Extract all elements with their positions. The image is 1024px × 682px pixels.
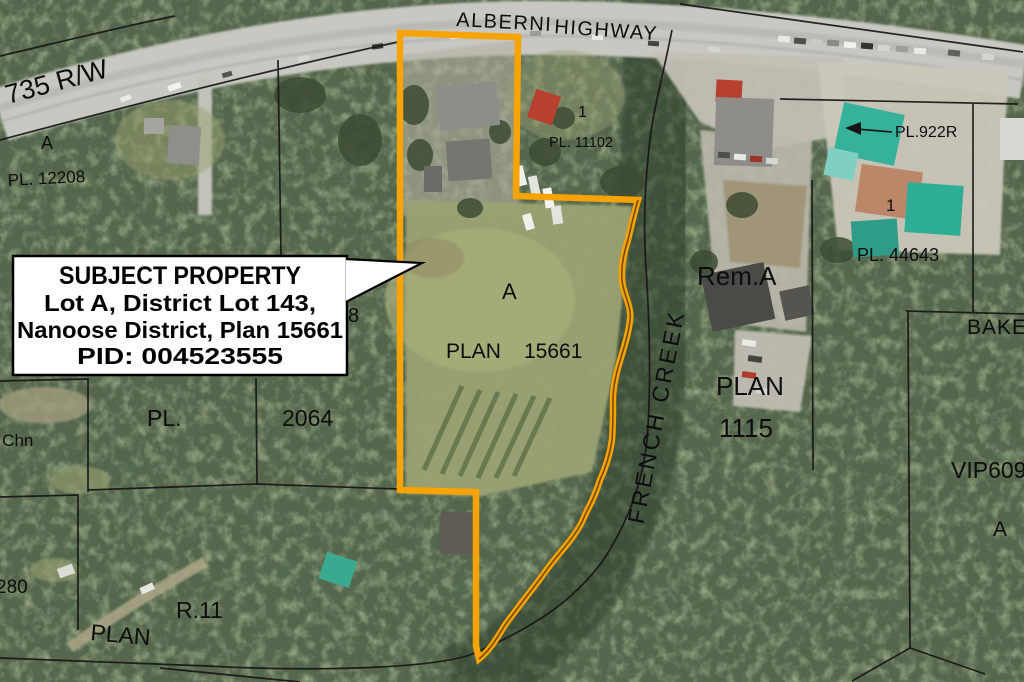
aerial-parcel-map: ALBERNI HIGHWAY 735 R/W A PL. 12208 1 PL… xyxy=(0,0,1024,682)
label-bake: BAKE xyxy=(967,316,1024,339)
label-parcel-a-center: A xyxy=(502,279,517,304)
label-pl-w: PL. xyxy=(147,405,182,431)
label-plan-e: PLAN xyxy=(716,371,784,401)
label-r11: R.11 xyxy=(176,597,223,623)
callout-line-3: Nanoose District, Plan 15661 xyxy=(17,317,343,343)
label-pl-11102: PL. 11102 xyxy=(549,134,613,151)
label-chn: 3 Chn xyxy=(0,431,33,450)
label-lot-1-ne: 1 xyxy=(886,196,895,215)
label-plan-center-num: 15661 xyxy=(524,340,582,363)
callout-line-1: SUBJECT PROPERTY xyxy=(59,262,301,290)
callout-line-4: PID: 004523555 xyxy=(77,343,283,369)
label-rem-a: Rem.A xyxy=(697,261,777,291)
label-partial-8: 8 xyxy=(348,305,359,327)
label-lot-1-n: 1 xyxy=(578,104,587,121)
label-pl-44643: PL. 44643 xyxy=(857,245,939,265)
label-2064: 2064 xyxy=(282,405,333,431)
label-pl-922r: PL.922R xyxy=(895,124,957,141)
label-plan-center: PLAN xyxy=(446,340,501,363)
label-280: 280 xyxy=(0,577,28,598)
label-vip609: VIP609 xyxy=(951,457,1024,483)
label-parcel-a-se: A xyxy=(993,518,1007,541)
map-canvas: ALBERNI HIGHWAY 735 R/W A PL. 12208 1 PL… xyxy=(0,0,1024,682)
label-parcel-a-nw: A xyxy=(41,133,53,153)
label-plan-e-num: 1115 xyxy=(719,413,773,443)
label-plan-sw: PLAN xyxy=(90,619,152,650)
label-pl-12208: PL. 12208 xyxy=(7,167,85,190)
callout-line-2: Lot A, District Lot 143, xyxy=(44,290,316,316)
